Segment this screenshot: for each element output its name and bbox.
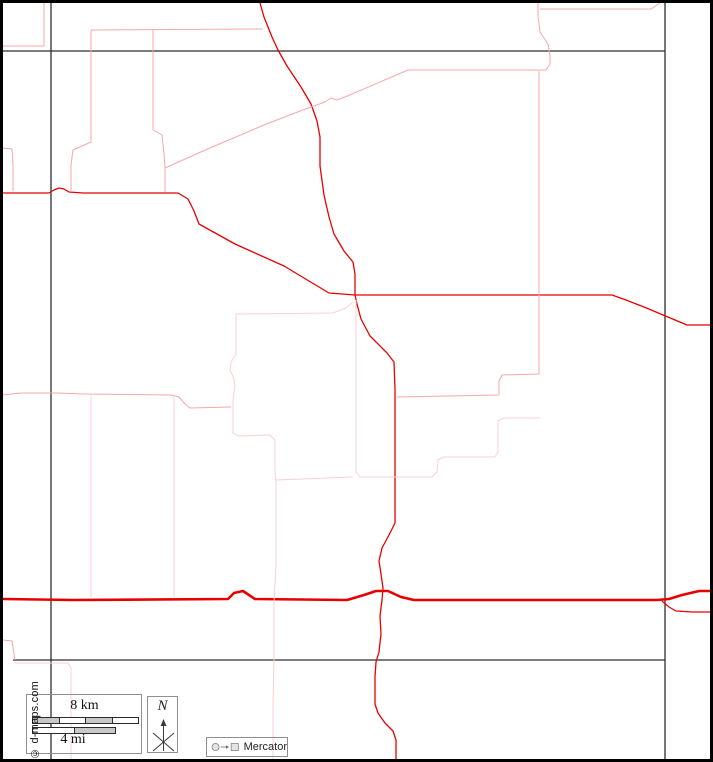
highway-branch-southeast — [662, 601, 713, 612]
boundary-northeast-vertical-top — [538, 3, 550, 70]
boundary-center-connector — [276, 477, 353, 480]
map-page: 8 km 4 mi N Mercator © d-maps.com — [0, 0, 713, 762]
scale-segment-white — [59, 718, 86, 723]
boundary-center-steps — [356, 300, 540, 477]
highway-main — [3, 591, 713, 600]
projection-box: Mercator — [206, 737, 288, 757]
boundary-center-vertical-long — [230, 314, 276, 761]
boundary-west-vertical — [71, 30, 91, 192]
road-east-west — [3, 188, 713, 325]
boundary-diagonal-northeast — [165, 70, 546, 168]
projection-transform-icon — [211, 740, 240, 754]
scale-bar-box: 8 km 4 mi — [26, 694, 142, 754]
north-arrow-icon — [148, 718, 179, 752]
boundary-top-horizontal — [91, 29, 263, 30]
boundary-east-step-down — [397, 71, 539, 397]
scale-bar-km — [32, 717, 139, 724]
boundary-west-horizontal — [3, 393, 231, 408]
boundary-topleft-corner — [3, 3, 44, 46]
compass-box: N — [147, 696, 178, 753]
scale-segment-white — [112, 718, 139, 723]
scale-segment-gray — [85, 718, 112, 723]
boundary-left-edge-hook-south — [3, 640, 15, 660]
boundary-center-horizontal — [236, 302, 353, 314]
copyright-text: © d-maps.com — [29, 679, 41, 759]
road-north-south — [260, 3, 396, 762]
map-canvas — [3, 3, 713, 762]
boundary-mid-vertical — [153, 29, 165, 192]
scale-mi-label: 4 mi — [32, 732, 114, 748]
north-label: N — [148, 698, 177, 715]
boundary-left-edge-hook-north — [3, 148, 13, 191]
scale-km-label: 8 km — [32, 698, 137, 714]
projection-label: Mercator — [244, 741, 287, 753]
boundary-topright-horizontal — [540, 3, 660, 9]
